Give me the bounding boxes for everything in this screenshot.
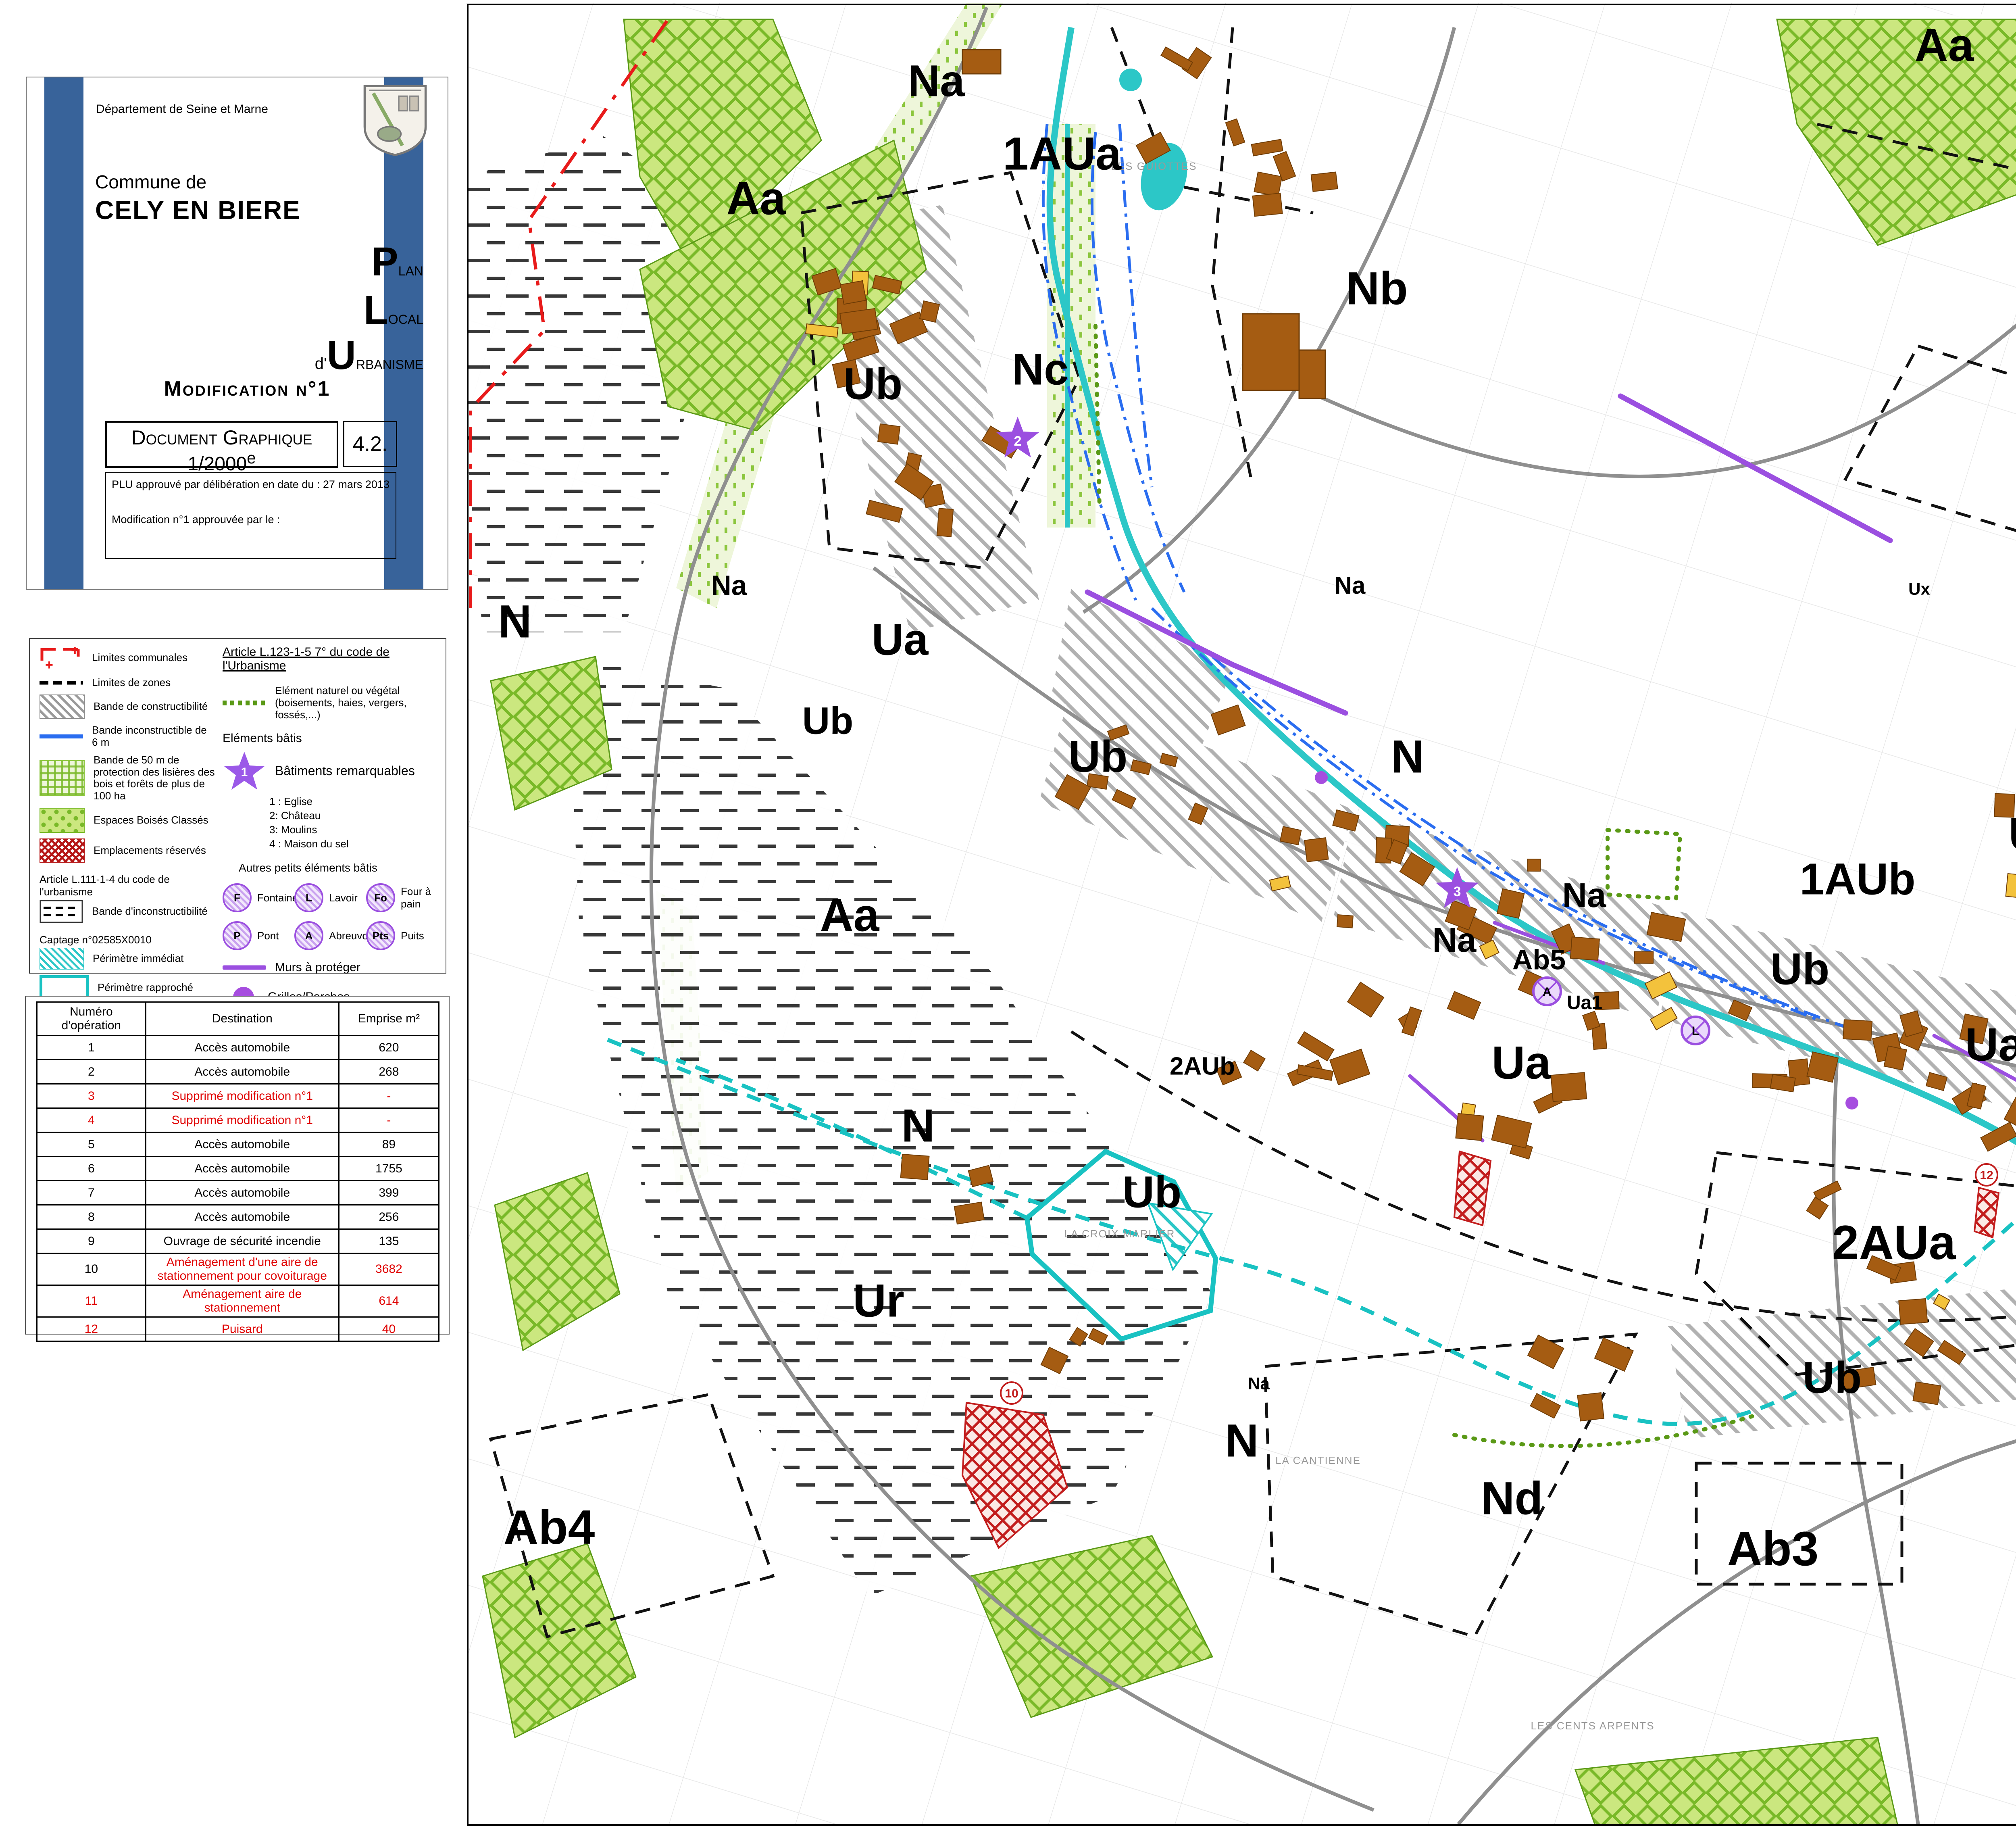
- table-row: 2Accès automobile268: [37, 1060, 439, 1084]
- legend-item-bande-50m: Bande de 50 m de protection des lisières…: [40, 754, 215, 803]
- table-cell: Accès automobile: [146, 1181, 339, 1205]
- star-items-list: 1 : Eglise 2: Château 3: Moulins 4 : Mai…: [269, 795, 442, 851]
- place-name: LA CANTIENNE: [1275, 1454, 1361, 1466]
- table-cell: Accès automobile: [146, 1157, 339, 1181]
- lavoir-icon: L: [294, 883, 323, 912]
- building: [1884, 1046, 1907, 1070]
- zone-label-Ua: Ua: [872, 615, 929, 665]
- legend-item-murs: Murs à protéger: [223, 961, 442, 975]
- approval-line-1: PLU approuvé par délibération en date du…: [112, 478, 396, 491]
- building: [840, 281, 866, 304]
- table-cell: Puisard: [146, 1317, 339, 1341]
- title-content: Département de Seine et Marne Commune de…: [87, 77, 407, 589]
- building: [1843, 1020, 1872, 1040]
- building: [1913, 1382, 1941, 1404]
- doc-scale: 1/2000e: [107, 449, 337, 475]
- small-built-element-abbr: L: [1692, 1024, 1699, 1038]
- building: [962, 50, 1001, 74]
- commune-coat-of-arms-icon: [359, 81, 431, 158]
- table-cell: Ouvrage de sécurité incendie: [146, 1229, 339, 1253]
- building: [1456, 1114, 1483, 1141]
- zone-label-Ua: Ua: [1491, 1037, 1551, 1089]
- table-cell: -: [339, 1084, 439, 1108]
- department-label: Département de Seine et Marne: [96, 102, 268, 116]
- modification-title: Modification n°1: [87, 377, 407, 401]
- zoning-map-canvas: 2313FLPtsFoLA101112 LES GUIOTTESLA CROIX…: [467, 3, 2016, 1826]
- zone-label-2AUb: 2AUb: [1170, 1053, 1235, 1080]
- protected-wall-icon: [223, 965, 266, 970]
- plu-line-2: Local: [364, 287, 423, 334]
- legend-item-bande-constructibilite: Bande de constructibilité: [40, 694, 215, 719]
- table-cell: 5: [37, 1132, 146, 1157]
- zone-label-Ub: Ub: [1803, 1353, 1862, 1403]
- table-row: 12Puisard40: [37, 1317, 439, 1341]
- commune-prefix: Commune de: [95, 171, 206, 193]
- zone-label-N: N: [498, 596, 531, 647]
- approval-line-2: Modification n°1 approuvée par le :: [112, 513, 396, 526]
- zone-label-N: N: [901, 1100, 935, 1151]
- table-row: 10Aménagement d'une aire de stationnemen…: [37, 1253, 439, 1285]
- star-item: 1 : Eglise: [269, 795, 442, 809]
- table-cell: 89: [339, 1132, 439, 1157]
- commune-name: CELY EN BIERE: [95, 195, 301, 225]
- document-graphique-box: Document Graphique 1/2000e: [105, 421, 338, 468]
- header-destination: Destination: [146, 1002, 339, 1036]
- table-cell: 3682: [339, 1253, 439, 1285]
- table-cell: 11: [37, 1285, 146, 1317]
- building: [1280, 826, 1302, 845]
- table-cell: 1: [37, 1036, 146, 1060]
- table-cell: Supprimé modification n°1: [146, 1108, 339, 1132]
- building: [878, 424, 900, 444]
- small-built-element-abbr: A: [1543, 985, 1552, 999]
- zone-label-Na: Na: [1562, 876, 1606, 915]
- table-cell: 8: [37, 1205, 146, 1229]
- table-cell: 7: [37, 1181, 146, 1205]
- article-l123-heading: Article L.123-1-5 7° du code de l'Urbani…: [223, 645, 442, 673]
- grille-porche-marker: [1315, 771, 1328, 784]
- circle-items-row-2: PPont AAbreuvoir PtsPuits: [223, 921, 442, 950]
- legend-item-batiments-remarquables: 1 Bâtiments remarquables: [223, 751, 442, 791]
- small-built-heading: Autres petits éléments bâtis: [239, 861, 442, 874]
- table-cell: 614: [339, 1285, 439, 1317]
- abreuvoir-icon: A: [294, 921, 323, 950]
- zone-label-N: N: [1391, 731, 1424, 782]
- table-cell: Supprimé modification n°1: [146, 1084, 339, 1108]
- table-cell: 10: [37, 1253, 146, 1285]
- zone-label-Ux: Ux: [1908, 580, 1930, 599]
- title-block: Département de Seine et Marne Commune de…: [26, 77, 448, 590]
- zone-label-1AUb: 1AUb: [1799, 855, 1915, 904]
- star-number: 3: [1454, 884, 1461, 899]
- table-row: 6Accès automobile1755: [37, 1157, 439, 1181]
- legend-item-bande-inconstructibilite: Bande d'inconstructibilité: [40, 900, 215, 923]
- forest-50m-band-icon: [40, 760, 85, 796]
- legend-left-column: + + Limites communales Limites de zones …: [40, 639, 215, 1031]
- svg-text:1: 1: [241, 765, 248, 779]
- table-cell: 12: [37, 1317, 146, 1341]
- legend-item-puits: PtsPuits: [366, 921, 438, 950]
- table-cell: Aménagement d'une aire de stationnement …: [146, 1253, 339, 1285]
- table-cell: 620: [339, 1036, 439, 1060]
- commune-limit-icon: + +: [40, 644, 83, 671]
- svg-text:+: +: [45, 657, 53, 671]
- svg-text:+: +: [71, 644, 79, 658]
- sheet-number-box: 4.2.: [343, 421, 397, 467]
- legend-item-bande-inconstructible: Bande inconstructible de 6 m: [40, 724, 215, 749]
- building: [1299, 350, 1325, 398]
- header-numero: Numérod'opération: [37, 1002, 146, 1036]
- zone-limit-icon: [40, 679, 83, 687]
- legend-right-column: Article L.123-1-5 7° du code de l'Urbani…: [223, 639, 442, 1008]
- zone-label-Aa: Aa: [726, 173, 786, 224]
- building: [954, 1202, 984, 1224]
- building: [1304, 838, 1328, 862]
- plu-line-1: Plan: [371, 239, 423, 285]
- inconstructibility-band-icon: [40, 900, 83, 923]
- building: [1570, 937, 1599, 960]
- zone-label-Ab4: Ab4: [504, 1500, 595, 1554]
- remarkable-building-star-icon: 1: [223, 751, 266, 791]
- operations-table: Numérod'opération Destination Emprise m²…: [36, 1001, 439, 1342]
- zone-label-N: N: [1225, 1415, 1258, 1466]
- zone-label-Ua: Ua: [1965, 1019, 2016, 1070]
- legend-item-ebc: Espaces Boisés Classés: [40, 808, 215, 833]
- zone-label-Na: Na: [711, 570, 748, 601]
- zone-label-Ub: Ub: [843, 359, 903, 409]
- zone-label-Ub: Ub: [1068, 732, 1128, 782]
- building: [1254, 172, 1282, 196]
- table-row: 5Accès automobile89: [37, 1132, 439, 1157]
- legend-panel: + + Limites communales Limites de zones …: [29, 638, 446, 974]
- building: [901, 1154, 929, 1180]
- zone-label-2AUa: 2AUa: [1832, 1216, 1956, 1270]
- header-emprise: Emprise m²: [339, 1002, 439, 1036]
- zone-label-Na: Na: [1248, 1374, 1270, 1393]
- classified-woodland-icon: [40, 808, 85, 833]
- table-row: 11Aménagement aire de stationnement614: [37, 1285, 439, 1317]
- building: [1807, 1052, 1838, 1082]
- zone-label-1AUa: 1AUa: [1003, 128, 1122, 179]
- building: [840, 309, 878, 334]
- zone-label-Ur: Ur: [853, 1275, 904, 1326]
- legend-item-limites-communales: + + Limites communales: [40, 644, 215, 671]
- legend-item-four-a-pain: FoFour à pain: [366, 883, 438, 912]
- table-cell: 268: [339, 1060, 439, 1084]
- immediate-perimeter-icon: [40, 948, 84, 970]
- captage-heading: Captage n°02585X0010: [40, 934, 215, 946]
- table-row: 1Accès automobile620: [37, 1036, 439, 1060]
- table-row: 8Accès automobile256: [37, 1205, 439, 1229]
- reserved-site-icon: [40, 838, 85, 863]
- place-name: LES GUIOTTES: [1111, 160, 1197, 172]
- doc-title: Document Graphique: [107, 426, 337, 449]
- zone-label-Nb: Nb: [1346, 263, 1408, 314]
- svg-text:10: 10: [1005, 1387, 1018, 1400]
- svg-text:12: 12: [1980, 1169, 1993, 1182]
- operations-table-body: 1Accès automobile6202Accès automobile268…: [37, 1036, 439, 1341]
- building: [1635, 952, 1654, 964]
- table-row: 9Ouvrage de sécurité incendie135: [37, 1229, 439, 1253]
- four-a-pain-icon: Fo: [366, 883, 395, 912]
- zone-label-Ub: Ub: [2008, 808, 2016, 860]
- zone-label-Aa: Aa: [1914, 19, 1974, 71]
- table-cell: 6: [37, 1157, 146, 1181]
- building: [1311, 172, 1338, 191]
- legend-item-limites-zones: Limites de zones: [40, 677, 215, 689]
- zone-label-Nc: Nc: [1012, 345, 1069, 394]
- building: [920, 301, 939, 322]
- grille-porche-marker: [1845, 1097, 1858, 1109]
- constructibility-band-icon: [40, 694, 85, 719]
- legend-item-lavoir: LLavoir: [294, 883, 366, 912]
- building: [1253, 193, 1283, 216]
- building: [1551, 1072, 1587, 1101]
- legend-item-abreuvoir: AAbreuvoir: [294, 921, 366, 950]
- approval-box: PLU approuvé par délibération en date du…: [105, 472, 396, 559]
- table-cell: 256: [339, 1205, 439, 1229]
- star-number: 2: [1014, 434, 1022, 449]
- title-left-bar: [44, 77, 83, 589]
- operations-table-panel: Numérod'opération Destination Emprise m²…: [25, 996, 450, 1335]
- zone-label-Ub: Ub: [1123, 1168, 1182, 1217]
- building: [1899, 1299, 1927, 1324]
- table-cell: 1755: [339, 1157, 439, 1181]
- table-row: 4Supprimé modification n°1-: [37, 1108, 439, 1132]
- table-row: 7Accès automobile399: [37, 1181, 439, 1205]
- pont-icon: P: [223, 921, 252, 950]
- zone-label-Ab3: Ab3: [1727, 1522, 1819, 1576]
- zone-label-Ua1: Ua1: [1567, 992, 1602, 1014]
- building: [1527, 859, 1540, 871]
- circle-items-row-1: FFontaine LLavoir FoFour à pain: [223, 883, 442, 912]
- blue-band-icon: [40, 733, 83, 740]
- legend-item-emplacements-reserves: Emplacements réservés: [40, 838, 215, 863]
- operations-table-header: Numérod'opération Destination Emprise m²: [37, 1002, 439, 1036]
- table-cell: Aménagement aire de stationnement: [146, 1285, 339, 1317]
- legend-item-perimetre-immediat: Périmètre immédiat: [40, 948, 215, 970]
- fontaine-icon: F: [223, 883, 252, 912]
- zone-label-Na: Na: [1335, 572, 1366, 599]
- table-cell: 9: [37, 1229, 146, 1253]
- zone-label-Na: Na: [1433, 921, 1477, 959]
- table-cell: Accès automobile: [146, 1205, 339, 1229]
- building: [937, 508, 953, 536]
- legend-item-pont: PPont: [223, 921, 294, 950]
- star-item: 4 : Maison du sel: [269, 837, 442, 851]
- star-item: 2: Château: [269, 809, 442, 823]
- zone-label-Ub: Ub: [802, 699, 854, 742]
- plu-map-sheet: Département de Seine et Marne Commune de…: [0, 0, 2016, 1829]
- table-cell: 40: [339, 1317, 439, 1341]
- built-elements-heading: Eléments bâtis: [223, 732, 442, 745]
- natural-element-icon: [223, 699, 266, 707]
- legend-item-fontaine: FFontaine: [223, 883, 294, 912]
- chateau-building: [1243, 314, 1299, 390]
- place-name: LES CENTS ARPENTS: [1531, 1720, 1654, 1732]
- place-name: LA CROIX MARLIER: [1064, 1228, 1175, 1240]
- puits-icon: Pts: [366, 921, 395, 950]
- table-cell: Accès automobile: [146, 1132, 339, 1157]
- table-cell: 2: [37, 1060, 146, 1084]
- zoning-map: 2313FLPtsFoLA101112 LES GUIOTTESLA CROIX…: [467, 3, 2016, 1826]
- table-cell: 135: [339, 1229, 439, 1253]
- building: [1577, 1393, 1604, 1421]
- table-cell: 3: [37, 1084, 146, 1108]
- plu-line-3: d'Urbanisme: [315, 332, 423, 379]
- table-cell: 4: [37, 1108, 146, 1132]
- zone-label-Ub: Ub: [1770, 945, 1830, 994]
- table-cell: 399: [339, 1181, 439, 1205]
- table-cell: -: [339, 1108, 439, 1132]
- table-cell: Accès automobile: [146, 1060, 339, 1084]
- zone-label-Nd: Nd: [1481, 1472, 1543, 1524]
- zone-label-Ab5: Ab5: [1512, 944, 1566, 976]
- zone-label-Na: Na: [908, 56, 965, 106]
- legend-item-element-naturel: Elément naturel ou végétal (boisements, …: [223, 685, 442, 721]
- building: [1337, 915, 1353, 928]
- table-cell: Accès automobile: [146, 1036, 339, 1060]
- building: [2006, 874, 2016, 897]
- table-row: 3Supprimé modification n°1-: [37, 1084, 439, 1108]
- star-item: 3: Moulins: [269, 823, 442, 837]
- zone-label-Aa: Aa: [820, 889, 879, 941]
- article-l111-heading: Article L.111-1-4 du code de l'urbanisme: [40, 873, 215, 898]
